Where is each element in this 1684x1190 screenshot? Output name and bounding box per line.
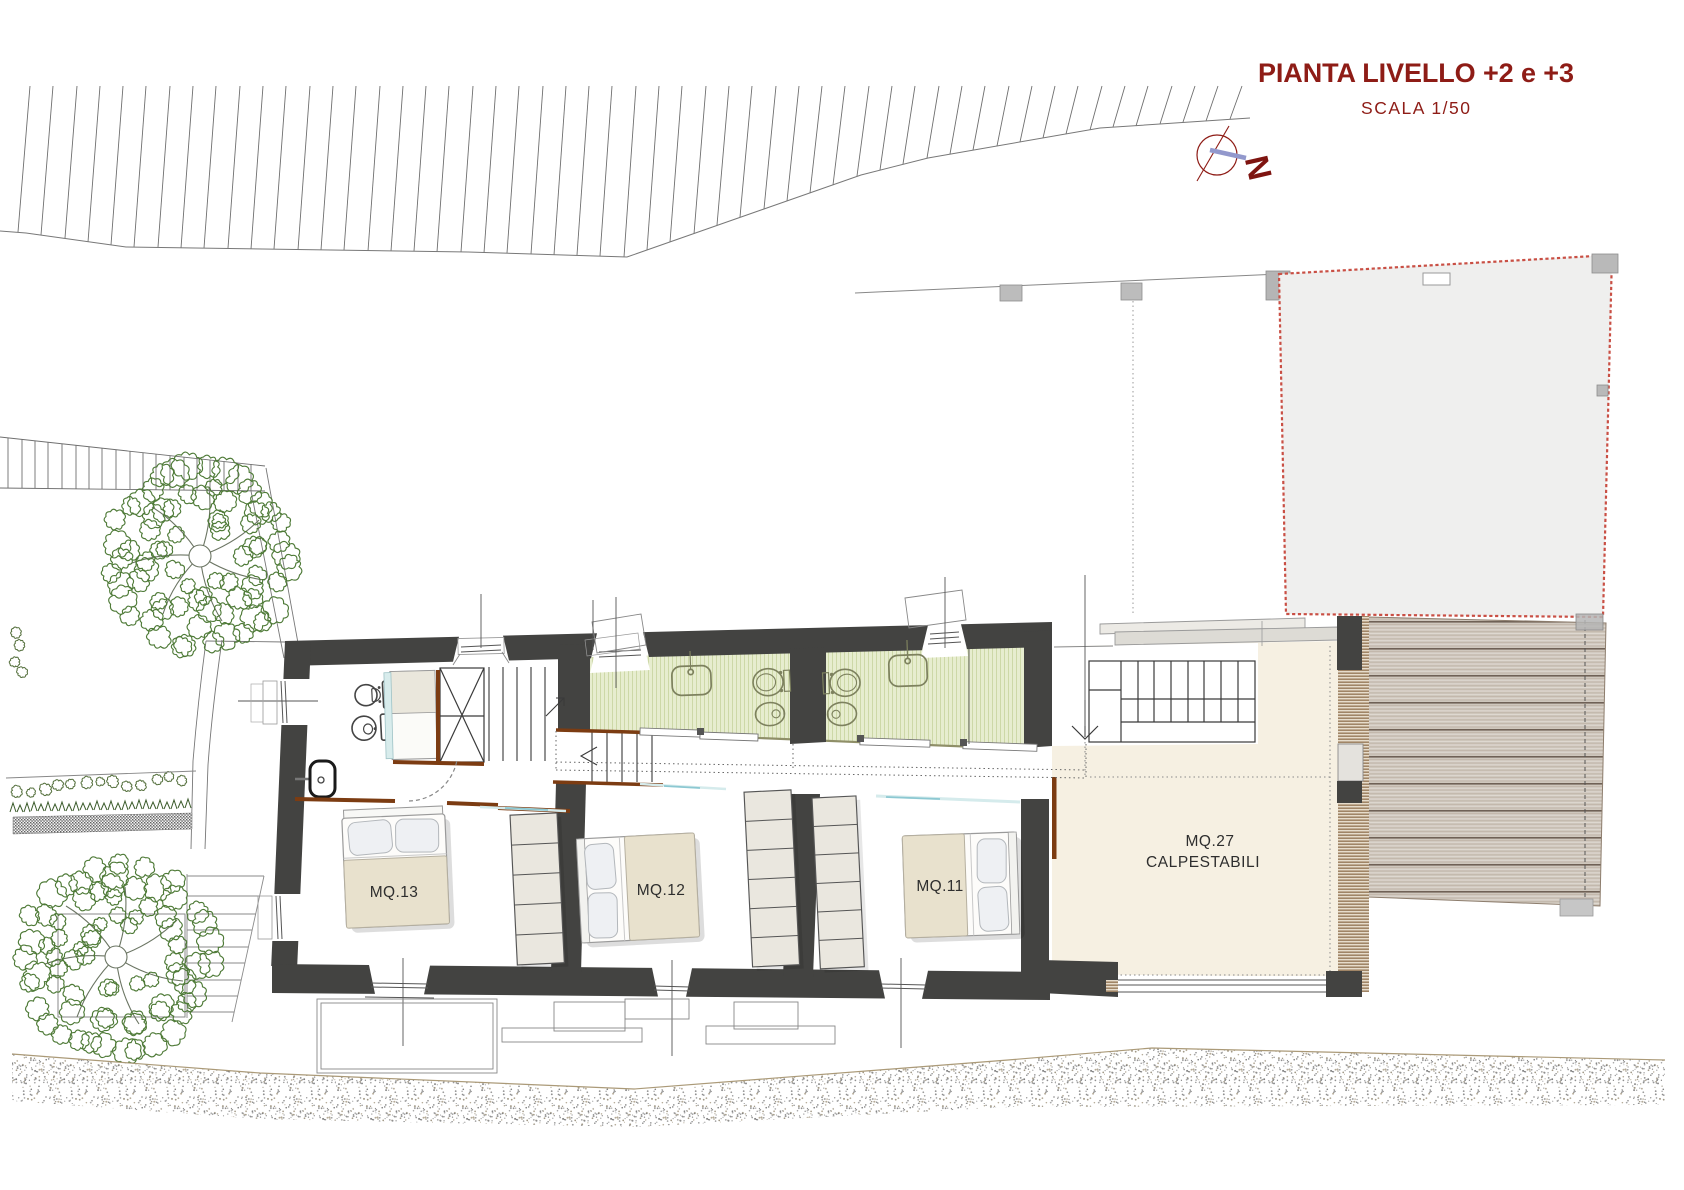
svg-text:CALPESTABILI: CALPESTABILI [1146, 854, 1260, 871]
svg-text:MQ.12: MQ.12 [637, 882, 686, 899]
svg-text:MQ.13: MQ.13 [370, 884, 419, 901]
svg-text:MQ.27: MQ.27 [1185, 833, 1234, 850]
svg-text:SCALA 1/50: SCALA 1/50 [1361, 98, 1470, 118]
svg-text:PIANTA LIVELLO +2 e +3: PIANTA LIVELLO +2 e +3 [1258, 58, 1574, 88]
svg-text:MQ.11: MQ.11 [916, 878, 963, 895]
